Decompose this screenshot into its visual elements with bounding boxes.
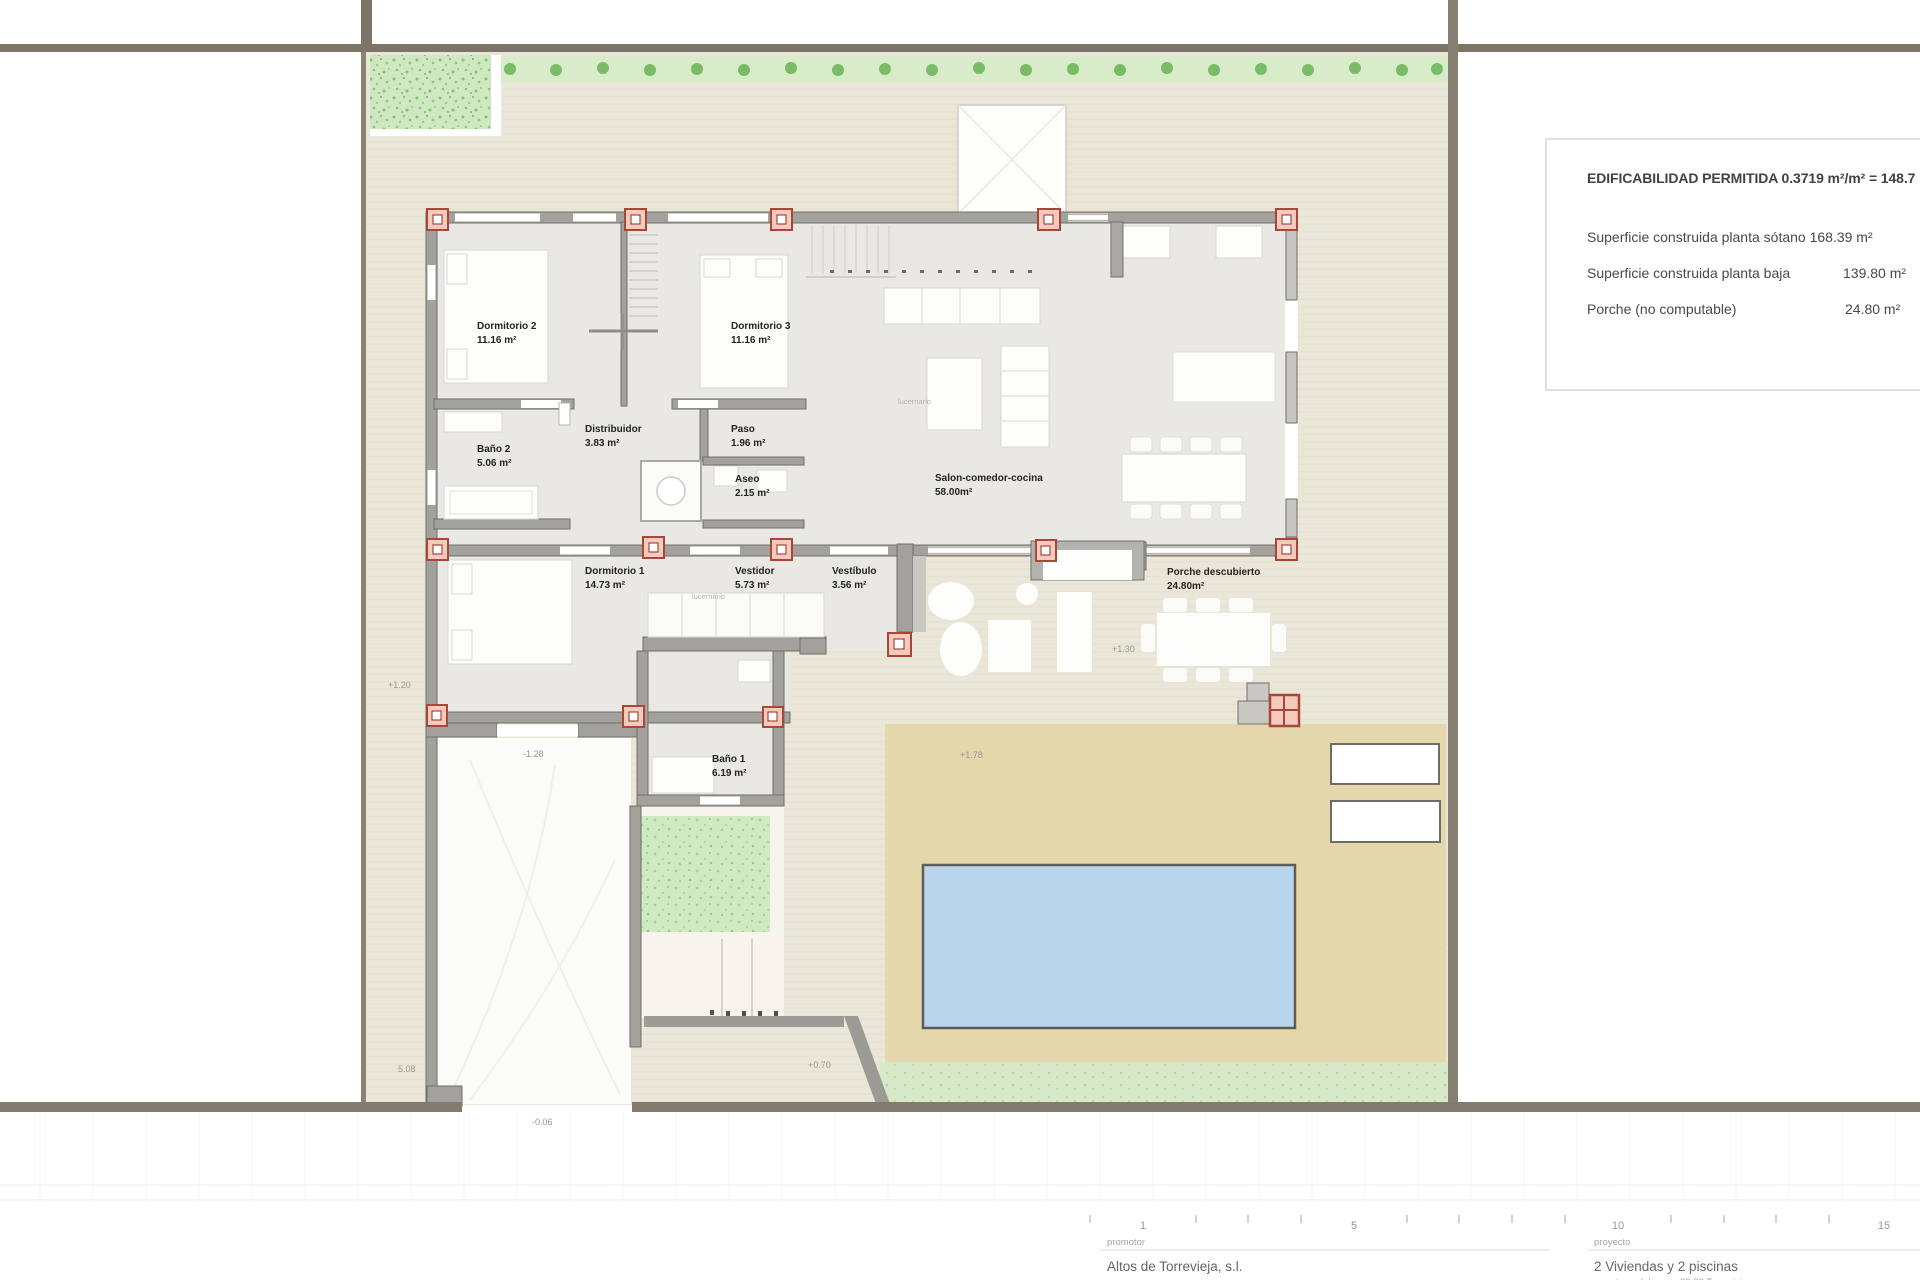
svg-text:5.73 m²: 5.73 m²	[735, 580, 770, 591]
svg-text:Porche (no computable): Porche (no computable)	[1587, 301, 1736, 317]
svg-text:3.56 m²: 3.56 m²	[832, 580, 867, 591]
svg-text:2 Viviendas y 2 piscinas: 2 Viviendas y 2 piscinas	[1594, 1259, 1738, 1274]
svg-text:Aseo: Aseo	[735, 474, 759, 485]
svg-text:Superficie construida planta b: Superficie construida planta baja	[1587, 265, 1790, 281]
svg-text:6.19 m²: 6.19 m²	[712, 768, 747, 779]
svg-text:+0.70: +0.70	[808, 1060, 831, 1070]
svg-text:11.16 m²: 11.16 m²	[477, 335, 517, 346]
svg-text:Vestidor: Vestidor	[735, 566, 775, 577]
svg-text:5.08: 5.08	[398, 1064, 416, 1074]
svg-text:Baño 1: Baño 1	[712, 754, 746, 765]
svg-text:-1.28: -1.28	[523, 749, 544, 759]
svg-text:Vestíbulo: Vestíbulo	[832, 566, 876, 577]
svg-text:10: 10	[1612, 1220, 1624, 1232]
svg-text:+1.20: +1.20	[388, 680, 411, 690]
svg-text:proyecto: proyecto	[1594, 1237, 1630, 1248]
svg-text:3.83 m²: 3.83 m²	[585, 438, 620, 449]
svg-text:Salon-comedor-cocina: Salon-comedor-cocina	[935, 473, 1043, 484]
svg-text:+1.78: +1.78	[960, 750, 983, 760]
svg-text:24.80 m²: 24.80 m²	[1845, 301, 1901, 317]
svg-text:Baño 2: Baño 2	[477, 444, 511, 455]
svg-text:14.73 m²: 14.73 m²	[585, 580, 626, 591]
svg-text:2.15 m²: 2.15 m²	[735, 488, 770, 499]
svg-text:Paso: Paso	[731, 424, 755, 435]
svg-text:lucernario: lucernario	[898, 397, 931, 406]
svg-text:Dormitorio 3: Dormitorio 3	[731, 321, 791, 332]
svg-text:15: 15	[1878, 1220, 1890, 1232]
svg-text:1.96 m²: 1.96 m²	[731, 438, 766, 449]
svg-text:-0.06: -0.06	[532, 1117, 553, 1127]
svg-text:Distribuidor: Distribuidor	[585, 424, 642, 435]
svg-text:11.16 m²: 11.16 m²	[731, 335, 771, 346]
svg-text:Altos de Torrevieja, s.l.: Altos de Torrevieja, s.l.	[1107, 1259, 1243, 1274]
svg-text:Dormitorio 1: Dormitorio 1	[585, 566, 645, 577]
svg-text:+1.30: +1.30	[1112, 644, 1135, 654]
svg-text:24.80m²: 24.80m²	[1167, 581, 1205, 592]
svg-text:lucernario: lucernario	[692, 592, 725, 601]
svg-text:promotor: promotor	[1107, 1237, 1145, 1248]
svg-text:139.80 m²: 139.80 m²	[1843, 265, 1906, 281]
svg-text:5.06 m²: 5.06 m²	[477, 458, 512, 469]
svg-text:Superficie construida planta s: Superficie construida planta sótano 168.…	[1587, 229, 1873, 245]
svg-text:1: 1	[1140, 1220, 1146, 1232]
svg-text:Dormitorio 2: Dormitorio 2	[477, 321, 537, 332]
svg-text:Porche descubierto: Porche descubierto	[1167, 567, 1260, 578]
svg-text:EDIFICABILIDAD PERMITIDA 0.371: EDIFICABILIDAD PERMITIDA 0.3719 m²/m² = …	[1587, 170, 1916, 186]
svg-text:58.00m²: 58.00m²	[935, 487, 973, 498]
svg-text:5: 5	[1351, 1220, 1357, 1232]
